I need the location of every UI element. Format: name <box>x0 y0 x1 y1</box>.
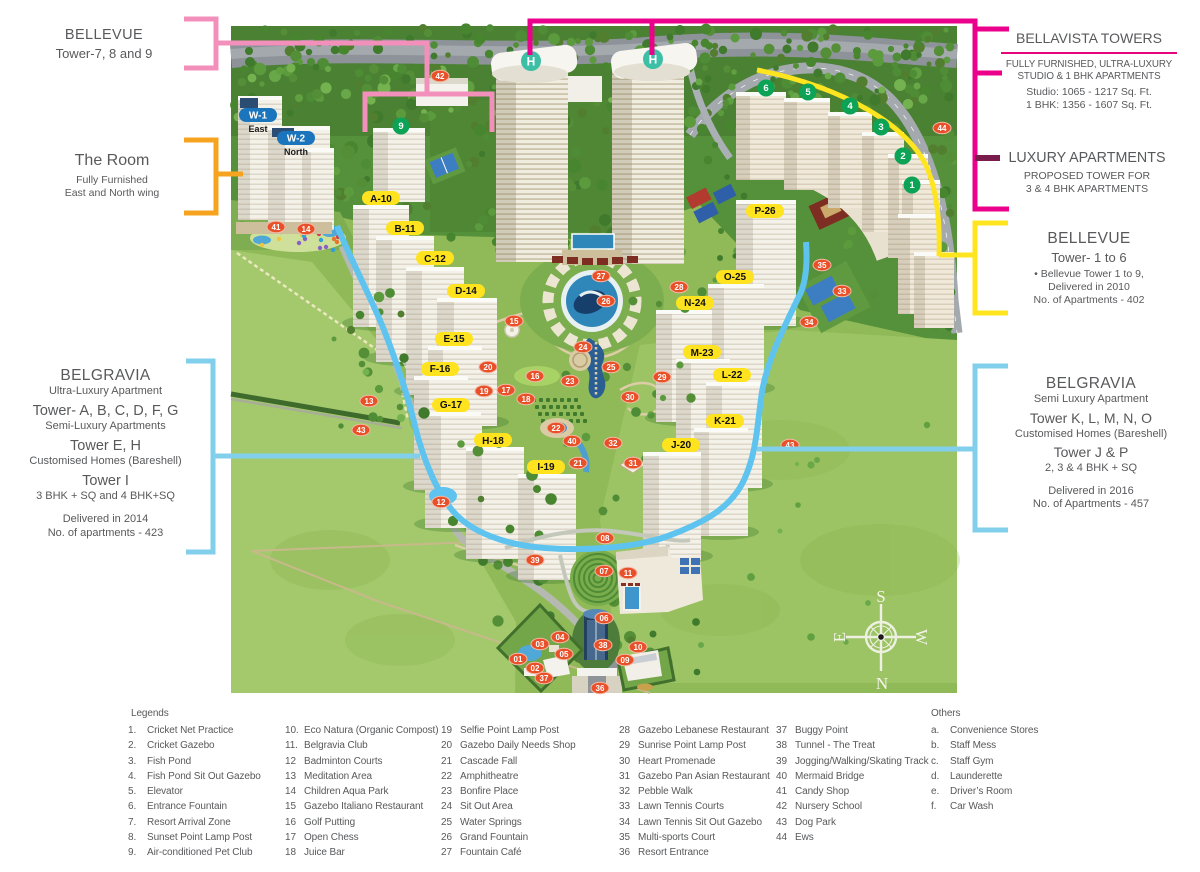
svg-text:2: 2 <box>900 151 905 162</box>
svg-text:12: 12 <box>437 498 446 507</box>
svg-text:S: S <box>876 587 885 606</box>
svg-text:06: 06 <box>600 614 609 623</box>
svg-text:6: 6 <box>763 83 768 94</box>
svg-text:01: 01 <box>514 655 523 664</box>
svg-text:02: 02 <box>531 664 540 673</box>
svg-text:38: 38 <box>599 641 608 650</box>
svg-text:08: 08 <box>601 534 610 543</box>
svg-text:11: 11 <box>624 569 633 578</box>
svg-text:I-19: I-19 <box>537 462 555 473</box>
svg-text:23: 23 <box>566 377 575 386</box>
svg-text:O-25: O-25 <box>724 272 747 283</box>
svg-text:05: 05 <box>560 650 569 659</box>
svg-text:30: 30 <box>626 393 635 402</box>
svg-text:35: 35 <box>818 261 827 270</box>
svg-text:H-18: H-18 <box>482 436 504 447</box>
svg-text:5: 5 <box>805 87 811 98</box>
svg-text:25: 25 <box>607 363 616 372</box>
svg-text:34: 34 <box>805 318 814 327</box>
svg-text:39: 39 <box>531 556 540 565</box>
svg-text:East: East <box>248 124 267 134</box>
svg-text:J-20: J-20 <box>671 440 691 451</box>
svg-text:07: 07 <box>600 567 609 576</box>
svg-text:G-17: G-17 <box>440 400 463 411</box>
svg-text:M-23: M-23 <box>691 348 714 359</box>
svg-text:N: N <box>876 674 888 693</box>
svg-text:40: 40 <box>568 437 577 446</box>
svg-text:B-11: B-11 <box>394 224 416 235</box>
svg-text:18: 18 <box>522 395 531 404</box>
svg-text:L-22: L-22 <box>722 370 743 381</box>
svg-text:W-2: W-2 <box>287 134 306 145</box>
svg-text:North: North <box>284 147 308 157</box>
svg-text:21: 21 <box>574 459 583 468</box>
svg-text:36: 36 <box>596 684 605 693</box>
svg-text:03: 03 <box>536 640 545 649</box>
svg-text:09: 09 <box>621 656 630 665</box>
svg-text:10: 10 <box>634 643 643 652</box>
svg-text:24: 24 <box>579 343 588 352</box>
svg-text:3: 3 <box>878 122 883 133</box>
svg-text:K-21: K-21 <box>714 416 736 427</box>
svg-text:E-15: E-15 <box>443 334 465 345</box>
svg-text:27: 27 <box>597 272 606 281</box>
svg-text:20: 20 <box>484 363 493 372</box>
svg-text:37: 37 <box>540 674 549 683</box>
svg-text:31: 31 <box>629 459 638 468</box>
svg-text:N-24: N-24 <box>684 298 706 309</box>
svg-text:9: 9 <box>398 121 403 132</box>
svg-text:4: 4 <box>847 101 853 112</box>
svg-text:E: E <box>830 632 849 642</box>
svg-text:1: 1 <box>909 180 915 191</box>
svg-text:22: 22 <box>552 424 561 433</box>
svg-text:13: 13 <box>365 397 374 406</box>
svg-text:W: W <box>912 629 931 646</box>
svg-text:P-26: P-26 <box>754 206 776 217</box>
svg-text:04: 04 <box>556 633 565 642</box>
svg-text:16: 16 <box>531 372 540 381</box>
svg-text:19: 19 <box>480 387 489 396</box>
svg-text:26: 26 <box>602 297 611 306</box>
svg-text:A-10: A-10 <box>370 194 392 205</box>
svg-text:41: 41 <box>272 223 281 232</box>
svg-text:32: 32 <box>609 439 618 448</box>
svg-text:33: 33 <box>838 287 847 296</box>
svg-text:42: 42 <box>436 72 445 81</box>
svg-text:W-1: W-1 <box>249 111 268 122</box>
svg-text:F-16: F-16 <box>430 364 451 375</box>
svg-text:17: 17 <box>502 386 511 395</box>
svg-text:C-12: C-12 <box>424 254 446 265</box>
svg-text:29: 29 <box>658 373 667 382</box>
svg-text:28: 28 <box>675 283 684 292</box>
svg-text:44: 44 <box>938 124 947 133</box>
svg-text:15: 15 <box>510 317 519 326</box>
svg-text:14: 14 <box>302 225 311 234</box>
svg-text:43: 43 <box>357 426 366 435</box>
svg-text:H: H <box>527 55 536 69</box>
svg-text:D-14: D-14 <box>455 286 477 297</box>
